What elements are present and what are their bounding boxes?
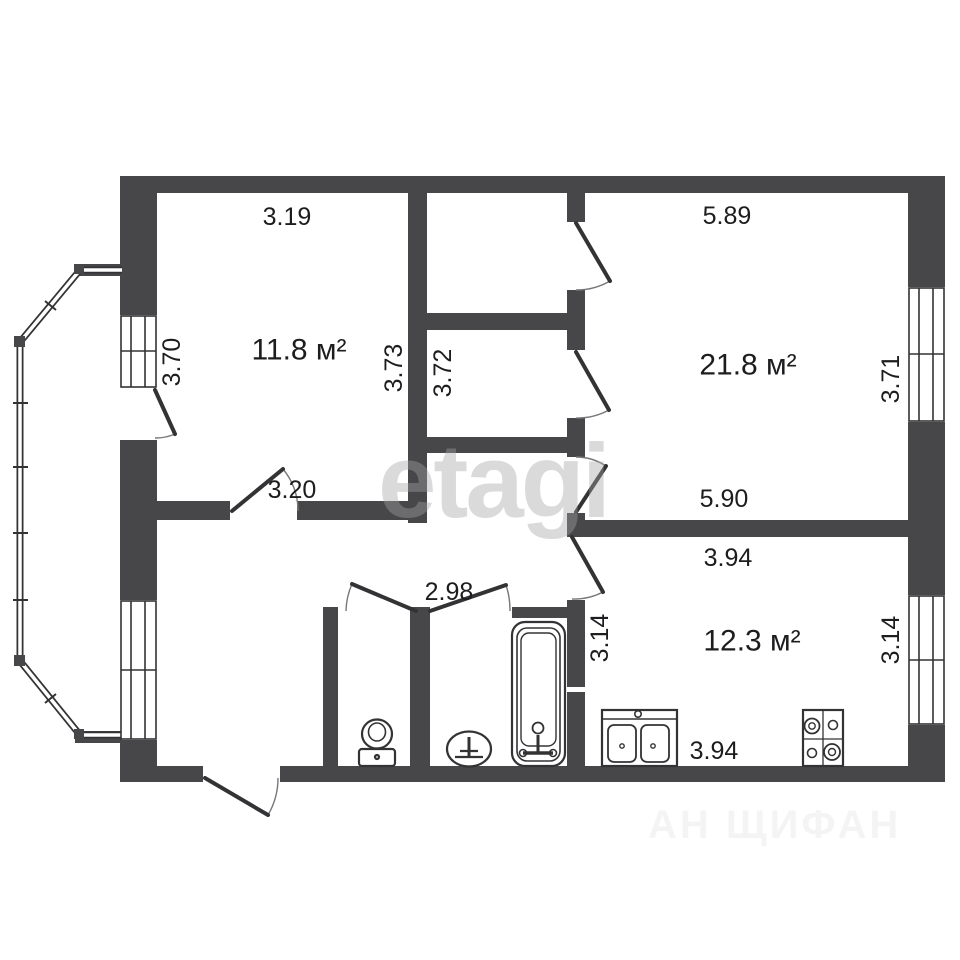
wall-bath-top — [512, 607, 567, 618]
wc-door — [352, 584, 416, 611]
dim-bathroom-width: 2.98 — [425, 578, 474, 606]
door-arc — [572, 592, 603, 599]
door-arc — [576, 281, 610, 290]
door-arc — [268, 778, 278, 815]
dim-bedroom-right: 3.73 — [380, 344, 408, 393]
area-living: 21.8 м² — [699, 349, 796, 382]
balcony-corner-block — [14, 336, 25, 347]
wall-right-upper — [908, 176, 945, 287]
door-arc — [506, 585, 510, 611]
watermark-agency: АН ЩИФАН — [648, 803, 901, 847]
wall-living-left-stub2 — [567, 290, 585, 350]
dim-kitchen-right: 3.14 — [877, 616, 905, 665]
wall-closet-divider — [408, 313, 567, 330]
area-bedroom: 11.8 м² — [251, 334, 346, 367]
door-arc — [155, 434, 175, 438]
watermark-etagi: etagi — [378, 423, 608, 540]
wall-bottom-left — [120, 766, 203, 782]
window-living — [909, 288, 944, 421]
wall-bottom-main — [280, 766, 945, 782]
balcony-corner-block — [14, 655, 25, 666]
wall-vent-notch — [564, 687, 590, 692]
kitchen-door — [572, 537, 603, 592]
balcony-glazing-inner — [20, 270, 122, 735]
window-hall — [121, 601, 156, 739]
wall-kitchen-top — [567, 520, 945, 537]
balcony-door — [155, 390, 175, 434]
dim-living-bottom: 5.90 — [700, 485, 749, 513]
dim-living-top: 5.89 — [703, 202, 752, 230]
bathtub — [512, 622, 565, 766]
floor-plan-page: etagi АН ЩИФАН 3.19 3.70 11.8 м² 3.73 3.… — [0, 0, 960, 960]
window-bedroom — [121, 316, 156, 387]
dim-kitchen-left: 3.14 — [586, 614, 614, 663]
dim-kitchen-bottom: 3.94 — [690, 737, 739, 765]
wall-top — [120, 176, 945, 193]
dim-bedroom-door: 3.20 — [268, 476, 317, 504]
balcony-corner-block — [74, 729, 84, 739]
balcony — [13, 264, 122, 739]
door-arc — [576, 410, 609, 418]
balcony-corner-block — [74, 264, 84, 274]
wall-wc-bath-divider — [410, 607, 430, 767]
wall-living-left-stub1 — [567, 180, 585, 222]
dim-kitchen-top: 3.94 — [704, 544, 753, 572]
wall-left-upper — [120, 176, 157, 315]
toilet — [359, 720, 395, 767]
door-arc — [346, 584, 352, 611]
floor-plan: etagi АН ЩИФАН 3.19 3.70 11.8 м² 3.73 3.… — [0, 0, 960, 960]
wall-bedroom-bottom-a — [150, 501, 230, 520]
dim-bedroom-top: 3.19 — [263, 203, 312, 231]
closet1-door — [576, 223, 610, 281]
washbasin — [447, 732, 491, 767]
stove — [803, 710, 843, 766]
dim-closet-width: 3.72 — [429, 349, 457, 398]
dim-living-right: 3.71 — [877, 355, 905, 404]
wall-wc-left — [323, 607, 338, 767]
wall-kitchen-left — [567, 600, 585, 767]
dim-bedroom-left: 3.70 — [158, 338, 186, 387]
area-kitchen: 12.3 м² — [703, 625, 800, 658]
window-kitchen — [909, 596, 944, 724]
closet2-door — [576, 352, 609, 410]
kitchen-sink — [602, 710, 677, 766]
entrance-door — [205, 778, 268, 815]
balcony-glazing-outer — [20, 270, 122, 735]
wall-right-middle — [908, 422, 945, 595]
